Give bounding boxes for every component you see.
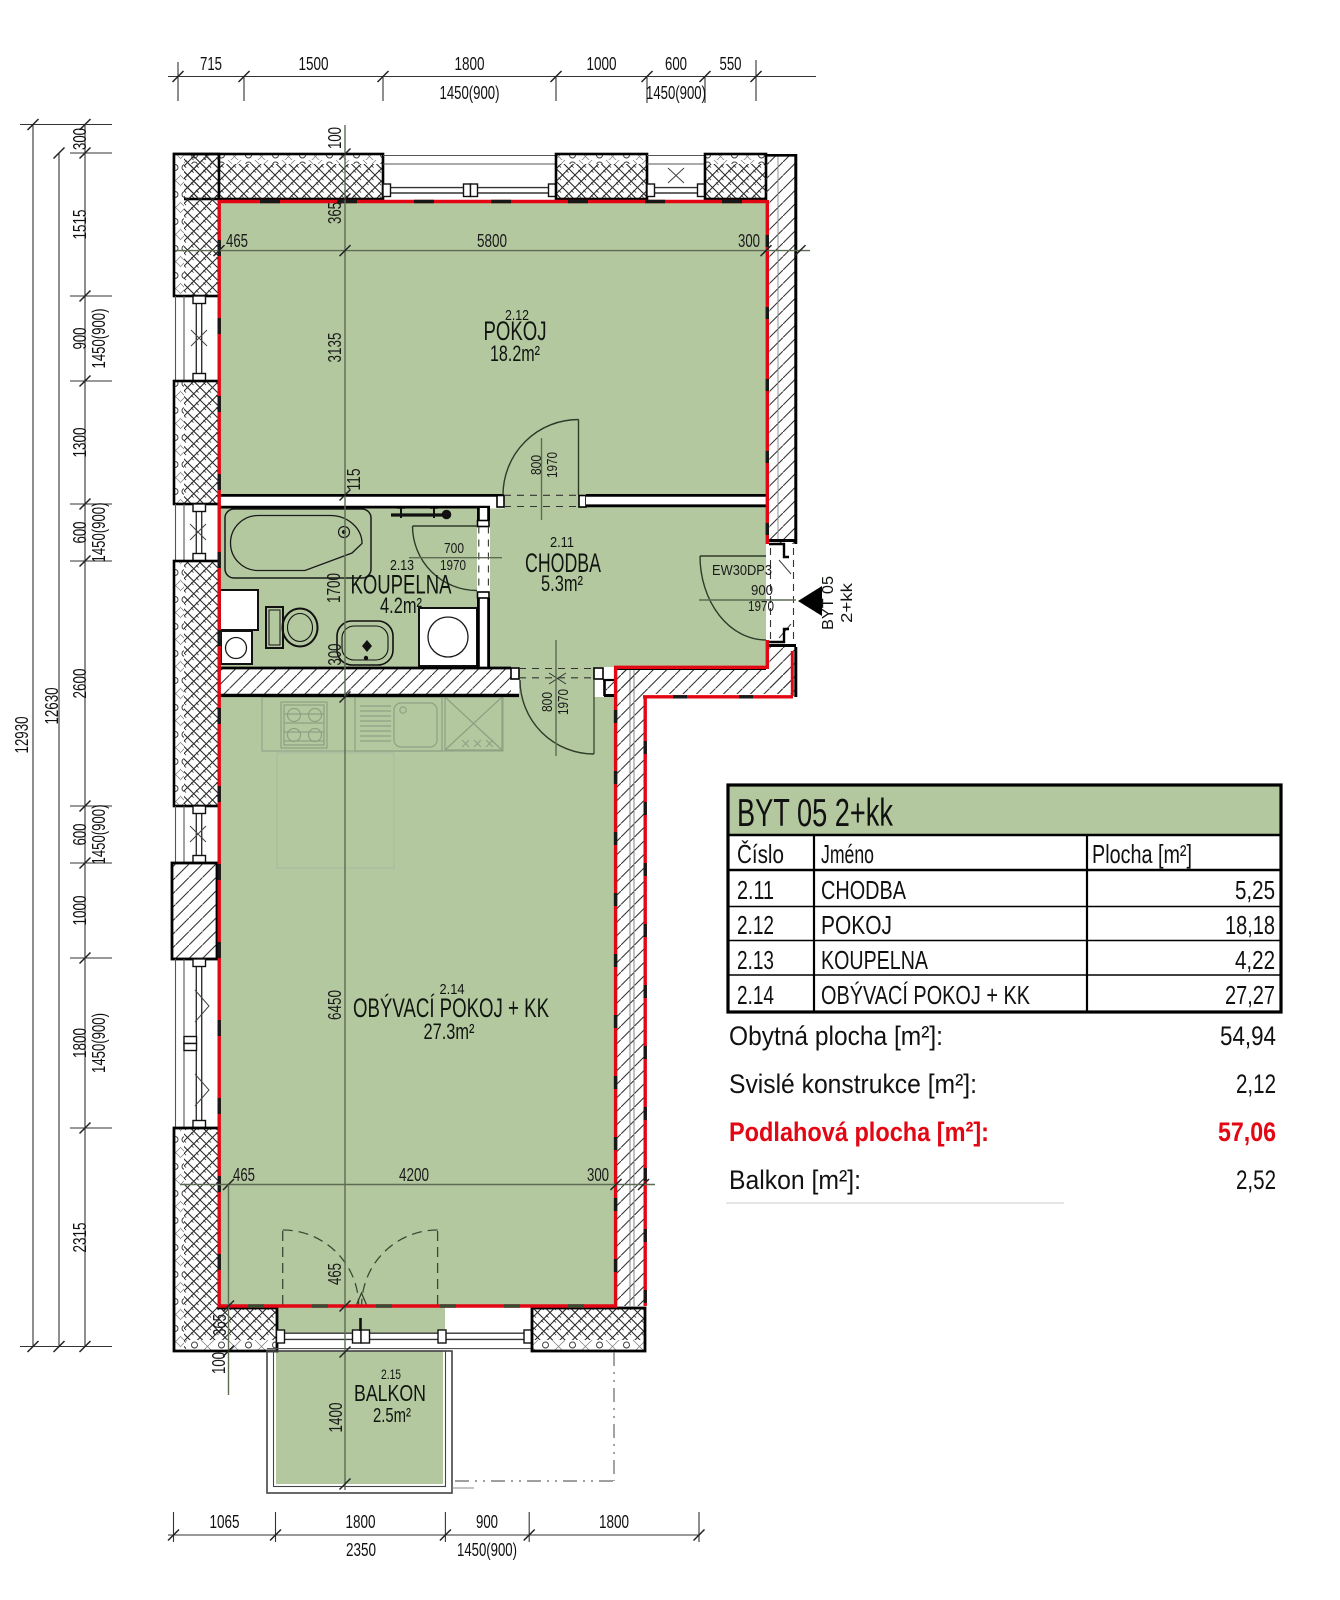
svg-text:100: 100	[325, 127, 345, 149]
svg-text:BALKON: BALKON	[354, 1380, 426, 1406]
svg-text:Podlahová plocha [m²]:: Podlahová plocha [m²]:	[729, 1117, 989, 1147]
svg-text:57,06: 57,06	[1218, 1117, 1276, 1147]
svg-text:1300: 1300	[70, 428, 90, 458]
svg-text:900: 900	[476, 1512, 498, 1532]
svg-text:OBÝVACÍ POKOJ + KK: OBÝVACÍ POKOJ + KK	[821, 980, 1030, 1010]
svg-text:2,12: 2,12	[1236, 1069, 1276, 1099]
svg-text:800: 800	[539, 692, 556, 712]
svg-text:18,18: 18,18	[1225, 910, 1275, 940]
svg-text:27.3m²: 27.3m²	[424, 1019, 475, 1044]
svg-text:2.5m²: 2.5m²	[373, 1405, 411, 1427]
svg-text:300: 300	[587, 1165, 609, 1185]
svg-text:900: 900	[751, 582, 773, 599]
svg-text:POKOJ: POKOJ	[821, 910, 892, 940]
svg-text:12930: 12930	[12, 717, 32, 754]
svg-text:600: 600	[665, 54, 687, 74]
svg-text:1800: 1800	[70, 1028, 90, 1058]
svg-text:1450(900): 1450(900)	[440, 83, 500, 103]
svg-text:1970: 1970	[544, 452, 561, 478]
svg-text:465: 465	[233, 1165, 255, 1185]
svg-text:900: 900	[70, 328, 90, 350]
svg-text:600: 600	[70, 522, 90, 544]
svg-text:Svislé konstrukce [m²]:: Svislé konstrukce [m²]:	[729, 1069, 977, 1099]
svg-text:365: 365	[210, 1314, 230, 1336]
svg-text:2.14: 2.14	[737, 980, 774, 1010]
svg-text:1800: 1800	[346, 1512, 376, 1532]
svg-text:Obytná plocha [m²]:: Obytná plocha [m²]:	[729, 1021, 943, 1051]
svg-text:300: 300	[738, 231, 760, 251]
svg-text:1000: 1000	[587, 54, 617, 74]
svg-text:2600: 2600	[70, 669, 90, 699]
svg-text:Číslo: Číslo	[737, 839, 784, 869]
svg-text:1515: 1515	[70, 210, 90, 240]
svg-text:2,52: 2,52	[1236, 1165, 1276, 1195]
svg-text:5.3m²: 5.3m²	[541, 571, 583, 596]
svg-text:465: 465	[325, 1263, 345, 1285]
svg-text:2+kk: 2+kk	[839, 582, 856, 623]
svg-text:1450(900): 1450(900)	[89, 805, 109, 865]
svg-text:115: 115	[344, 469, 364, 491]
svg-text:1700: 1700	[324, 573, 344, 603]
svg-text:2.11: 2.11	[737, 875, 774, 905]
svg-text:CHODBA: CHODBA	[821, 875, 906, 905]
svg-text:Plocha [m²]: Plocha [m²]	[1092, 839, 1192, 869]
svg-text:Balkon [m²]:: Balkon [m²]:	[729, 1165, 861, 1195]
svg-text:100: 100	[209, 1352, 229, 1374]
svg-text:5,25: 5,25	[1235, 875, 1275, 905]
svg-text:BYT 05: BYT 05	[820, 576, 837, 630]
svg-text:2.13: 2.13	[737, 945, 774, 975]
svg-text:4,22: 4,22	[1235, 945, 1275, 975]
svg-text:800: 800	[528, 455, 545, 475]
svg-text:1970: 1970	[748, 598, 774, 615]
svg-text:365: 365	[325, 202, 345, 224]
svg-text:18.2m²: 18.2m²	[490, 341, 540, 366]
svg-text:1800: 1800	[455, 54, 485, 74]
svg-text:1065: 1065	[210, 1512, 240, 1532]
svg-text:1450(900): 1450(900)	[89, 503, 109, 563]
svg-text:KOUPELNA: KOUPELNA	[821, 945, 928, 975]
svg-text:1400: 1400	[326, 1403, 346, 1433]
svg-text:300: 300	[325, 644, 345, 666]
svg-text:1970: 1970	[555, 689, 572, 715]
svg-text:1000: 1000	[70, 896, 90, 926]
svg-text:700: 700	[444, 540, 464, 557]
svg-text:54,94: 54,94	[1220, 1021, 1276, 1051]
svg-text:1450(900): 1450(900)	[89, 1013, 109, 1073]
svg-text:1450(900): 1450(900)	[457, 1540, 517, 1560]
svg-text:6450: 6450	[325, 990, 345, 1020]
svg-text:300: 300	[70, 128, 90, 150]
svg-text:465: 465	[226, 231, 248, 251]
svg-text:1500: 1500	[299, 54, 329, 74]
svg-text:3135: 3135	[325, 333, 345, 363]
svg-text:600: 600	[70, 824, 90, 846]
svg-text:2315: 2315	[70, 1223, 90, 1253]
svg-text:BYT 05 2+kk: BYT 05 2+kk	[737, 792, 893, 835]
svg-text:27,27: 27,27	[1225, 980, 1275, 1010]
svg-text:4.2m²: 4.2m²	[380, 593, 422, 618]
svg-text:715: 715	[200, 54, 222, 74]
svg-text:1450(900): 1450(900)	[646, 83, 706, 103]
svg-text:5800: 5800	[477, 231, 507, 251]
svg-text:4200: 4200	[399, 1165, 429, 1185]
svg-text:2350: 2350	[346, 1540, 376, 1560]
svg-text:12630: 12630	[42, 688, 62, 725]
svg-text:EW30DP3: EW30DP3	[712, 563, 772, 579]
svg-text:Jméno: Jméno	[821, 839, 874, 869]
svg-text:2.12: 2.12	[737, 910, 774, 940]
svg-text:1800: 1800	[599, 1512, 629, 1532]
svg-text:1450(900): 1450(900)	[89, 309, 109, 369]
svg-text:550: 550	[720, 54, 742, 74]
